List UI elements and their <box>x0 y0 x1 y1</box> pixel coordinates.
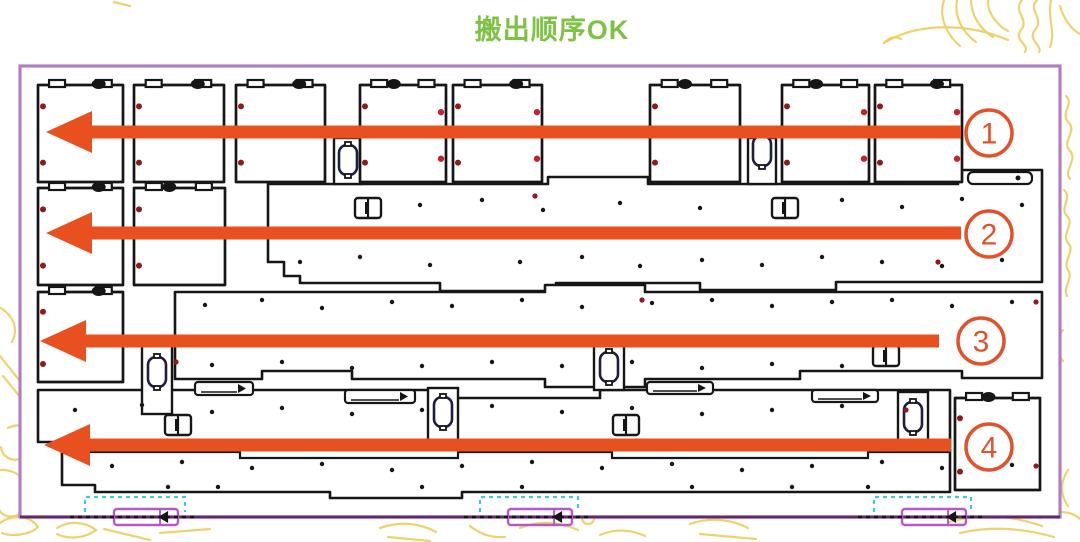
drill-dot <box>428 263 432 267</box>
tab-notch <box>146 183 162 190</box>
drill-dot <box>280 360 284 364</box>
decor-squiggle <box>1066 96 1073 179</box>
slot-fill <box>623 419 627 431</box>
clamp-dash <box>504 516 508 519</box>
fiducial-dot-red <box>957 415 963 421</box>
drill-dot <box>700 366 704 370</box>
drill-dot <box>700 412 704 416</box>
decor-squiggle <box>388 537 430 541</box>
tooling-hole <box>434 397 452 427</box>
tab-notch <box>886 80 902 87</box>
drill-dot <box>650 301 654 305</box>
drill-dot <box>520 485 524 489</box>
sequence-number-2: 2 <box>981 219 998 252</box>
clamp-dash <box>962 516 966 519</box>
fiducial-dot-red <box>173 359 178 364</box>
clamp-dash <box>472 516 476 519</box>
tab-blob <box>509 79 523 89</box>
tooling-nub <box>345 174 351 178</box>
tooling-nub <box>345 142 351 146</box>
slot-fill <box>175 419 179 431</box>
sequence-number-3: 3 <box>973 326 990 359</box>
drill-dot <box>73 408 77 412</box>
drill-dot <box>210 410 214 414</box>
fiducial-dot-red <box>639 297 644 302</box>
drill-dot <box>541 208 545 212</box>
drill-dot <box>840 364 844 368</box>
drill-dot <box>520 298 524 302</box>
clamp-dash <box>480 516 484 519</box>
fiducial-dot-red <box>40 263 46 269</box>
decor-squiggle <box>57 523 96 538</box>
tooling-nub <box>606 381 612 385</box>
tooling-hole <box>339 145 357 175</box>
drill-dot <box>820 255 824 259</box>
tab-notch <box>371 80 387 87</box>
drill-dot <box>250 466 254 470</box>
clamp-dash <box>890 516 894 519</box>
drill-dot <box>166 485 170 489</box>
clamp-dash <box>110 516 114 519</box>
drill-dot <box>298 260 302 264</box>
decor-squiggle <box>160 529 210 533</box>
decor-squiggle <box>700 534 756 539</box>
fiducial-dot-red <box>238 160 244 166</box>
tooling-nub <box>759 165 765 169</box>
drill-dot <box>518 260 522 264</box>
tab-notch <box>711 80 727 87</box>
fiducial-dot-red <box>362 103 368 109</box>
fiducial-dot-red <box>455 103 461 109</box>
clamp-dash <box>126 516 130 519</box>
drill-dot <box>638 264 642 268</box>
fiducial-dot-red <box>784 160 790 166</box>
clamp-dash <box>78 516 82 519</box>
fiducial-dot-red <box>534 156 540 162</box>
drill-dot <box>280 406 284 410</box>
clamp-dash <box>898 516 902 519</box>
tab-blob <box>678 79 692 89</box>
clamp-dash <box>134 516 138 519</box>
fiducial-dot-red <box>877 103 883 109</box>
drill-dot <box>810 464 814 468</box>
drill-dot <box>580 255 584 259</box>
drill-dot <box>420 408 424 412</box>
clamp-dash <box>922 516 926 519</box>
fiducial-dot-red <box>861 156 867 162</box>
fiducial-dot-red <box>40 160 46 166</box>
drill-dot <box>770 408 774 412</box>
slot-fill <box>365 202 369 214</box>
panel-layout-diagram: 1234 <box>0 0 1080 542</box>
drill-dot <box>900 205 904 209</box>
drill-dot <box>560 364 564 368</box>
clamp-dash <box>970 516 974 519</box>
decor-squiggle <box>1060 6 1080 34</box>
clamp-dash <box>520 516 524 519</box>
tab-blob <box>809 79 823 89</box>
fiducial-dot-red <box>40 103 46 109</box>
drill-dot <box>600 466 604 470</box>
drill-dot <box>580 305 584 309</box>
drill-dot <box>866 485 870 489</box>
clamp-dash <box>102 516 106 519</box>
decor-squiggle <box>960 529 1054 537</box>
drill-dot <box>630 360 634 364</box>
tab-blob <box>162 182 176 192</box>
decor-squiggle <box>600 531 645 536</box>
fiducial-dot-red <box>1033 463 1038 468</box>
fiducial-dot-red <box>238 103 244 109</box>
fiducial-dot-red <box>136 263 142 269</box>
drill-dot <box>630 406 634 410</box>
tab-notch <box>418 80 434 87</box>
tooling-hole <box>600 352 618 382</box>
tab-notch <box>662 80 678 87</box>
clamp-dash <box>190 516 194 519</box>
tab-notch <box>49 80 65 87</box>
clamp-dash <box>150 516 154 519</box>
sequence-number-4: 4 <box>981 432 998 465</box>
drill-dot <box>840 198 844 202</box>
fiducial-dot-red <box>136 206 142 212</box>
slot-fill <box>782 202 786 214</box>
tab-notch <box>49 287 65 294</box>
sequence-number-1: 1 <box>981 118 998 151</box>
clamp-dash <box>882 516 886 519</box>
tab-blob <box>191 79 205 89</box>
drill-dot <box>670 462 674 466</box>
drill-dot <box>1000 258 1004 262</box>
drill-dot <box>203 303 207 307</box>
fiducial-dot-red <box>861 109 867 115</box>
fiducial-dot-red <box>136 160 142 166</box>
decor-squiggle <box>104 529 150 540</box>
drill-dot <box>140 403 144 407</box>
drill-dot <box>618 201 622 205</box>
clamp-dash <box>576 516 580 519</box>
drill-dot <box>350 412 354 416</box>
clamp-dash <box>528 516 532 519</box>
fiducial-dot-red <box>903 407 908 412</box>
drill-dot <box>530 460 534 464</box>
fiducial-dot-red <box>954 156 960 162</box>
drill-dot <box>216 485 220 489</box>
drill-dot <box>420 364 424 368</box>
tab-notch <box>196 183 212 190</box>
drill-dot <box>358 255 362 259</box>
decor-squiggle <box>690 520 748 528</box>
tab-blob <box>92 286 106 296</box>
drill-dot <box>840 404 844 408</box>
clamp-dash <box>978 516 982 519</box>
slide-canvas: 搬出顺序OK 1234 <box>0 0 1080 542</box>
fiducial-dot-red <box>652 160 658 166</box>
tooling-nub <box>910 431 916 435</box>
fiducial-dot-red <box>1033 299 1038 304</box>
clamp-dash <box>174 516 178 519</box>
drill-dot <box>770 362 774 366</box>
tab-notch <box>465 80 481 87</box>
decor-squiggle <box>1033 0 1040 52</box>
clamp-dash <box>86 516 90 519</box>
drill-dot <box>760 263 764 267</box>
clamp-dash <box>94 516 98 519</box>
decor-squiggle <box>1050 0 1052 47</box>
drill-dot <box>830 300 834 304</box>
drill-dot <box>770 304 774 308</box>
slot-tick <box>1016 176 1021 181</box>
decor-squiggle <box>956 0 976 42</box>
drill-dot <box>450 304 454 308</box>
fiducial-dot-red <box>136 103 142 109</box>
fiducial-dot-red <box>534 109 540 115</box>
tab-notch <box>841 80 857 87</box>
fiducial-dot-red <box>954 109 960 115</box>
fiducial-dot-red <box>957 469 963 475</box>
tab-blob <box>92 182 106 192</box>
clamp-dash <box>874 516 878 519</box>
clamp-dash <box>866 516 870 519</box>
drill-dot <box>210 363 214 367</box>
fiducial-dot-red <box>532 193 537 198</box>
tooling-nub <box>440 394 446 398</box>
decor-squiggle <box>1062 470 1068 506</box>
drill-dot <box>790 485 794 489</box>
drill-dot <box>490 360 494 364</box>
fiducial-dot-red <box>784 103 790 109</box>
drill-dot <box>950 304 954 308</box>
decor-squiggle <box>470 526 505 537</box>
fiducial-dot-red <box>40 206 46 212</box>
decor-squiggle <box>380 524 436 532</box>
drill-dot <box>390 300 394 304</box>
tab-blob <box>292 79 306 89</box>
fiducial-dot-red <box>438 109 444 115</box>
clamp-dash <box>536 516 540 519</box>
clamp-dash <box>118 516 122 519</box>
drill-dot <box>110 464 114 468</box>
tab-notch <box>1013 393 1029 400</box>
tooling-nub <box>440 426 446 430</box>
fiducial-dot-red <box>455 160 461 166</box>
drill-dot <box>320 306 324 310</box>
drill-dot <box>560 410 564 414</box>
clamp-dash <box>544 516 548 519</box>
fiducial-dot-red <box>362 160 368 166</box>
drill-dot <box>418 203 422 207</box>
clamp-dash <box>512 516 516 519</box>
clamp-dash <box>70 516 74 519</box>
decor-squiggle <box>114 2 130 6</box>
fiducial-dot-red <box>438 156 444 162</box>
drill-dot <box>390 468 394 472</box>
clamp-dash <box>488 516 492 519</box>
decor-squiggle <box>1019 0 1026 52</box>
decor-squiggle <box>1 308 15 342</box>
tooling-hole <box>904 402 922 432</box>
drill-dot <box>880 460 884 464</box>
clamp-dash <box>568 516 572 519</box>
fiducial-dot-red <box>935 259 940 264</box>
clamp-dash <box>930 516 934 519</box>
drill-dot <box>698 206 702 210</box>
drill-dot <box>1010 300 1014 304</box>
drill-dot <box>1020 203 1024 207</box>
drill-dot <box>740 468 744 472</box>
drill-dot <box>350 366 354 370</box>
drill-dot <box>1010 463 1014 467</box>
drill-dot <box>320 462 324 466</box>
decor-squiggle <box>988 0 1008 31</box>
tab-notch <box>146 80 162 87</box>
slot-wide <box>968 172 1032 184</box>
decor-squiggle <box>0 517 38 535</box>
decor-squiggle <box>1064 190 1071 296</box>
clamp-dash <box>906 516 910 519</box>
drill-dot <box>880 260 884 264</box>
tooling-nub <box>154 354 160 358</box>
fiducial-dot-red <box>877 160 883 166</box>
tab-notch <box>49 183 65 190</box>
clamp-dash <box>182 516 186 519</box>
drill-dot <box>940 264 944 268</box>
tab-notch <box>793 80 809 87</box>
tab-notch <box>248 80 264 87</box>
tooling-nub <box>606 349 612 353</box>
fiducial-dot-red <box>40 309 46 315</box>
drill-dot <box>180 460 184 464</box>
fiducial-dot-red <box>40 361 46 367</box>
drill-dot <box>960 197 964 201</box>
clamp-dash <box>496 516 500 519</box>
drill-dot <box>690 485 694 489</box>
tab-blob <box>92 79 106 89</box>
clamp-dash <box>464 516 468 519</box>
slot-fill <box>883 350 887 362</box>
clamp-dash <box>584 516 588 519</box>
drill-dot <box>940 466 944 470</box>
clamp-dash <box>938 516 942 519</box>
clamp-dash <box>858 516 862 519</box>
drill-dot <box>890 298 894 302</box>
clamp-dash <box>914 516 918 519</box>
tooling-nub <box>154 386 160 390</box>
drill-dot <box>700 258 704 262</box>
tooling-hole <box>753 136 771 166</box>
tooling-nub <box>910 399 916 403</box>
tab-blob <box>930 79 944 89</box>
drill-dot <box>480 198 484 202</box>
drill-dot <box>460 464 464 468</box>
drill-dot <box>420 485 424 489</box>
drill-dot <box>710 298 714 302</box>
tab-blob <box>982 392 996 402</box>
fiducial-dot-red <box>652 103 658 109</box>
drill-dot <box>260 298 264 302</box>
tooling-hole <box>148 357 166 387</box>
tab-blob <box>387 79 401 89</box>
tab-notch <box>966 393 982 400</box>
drill-dot <box>490 404 494 408</box>
clamp-dash <box>142 516 146 519</box>
